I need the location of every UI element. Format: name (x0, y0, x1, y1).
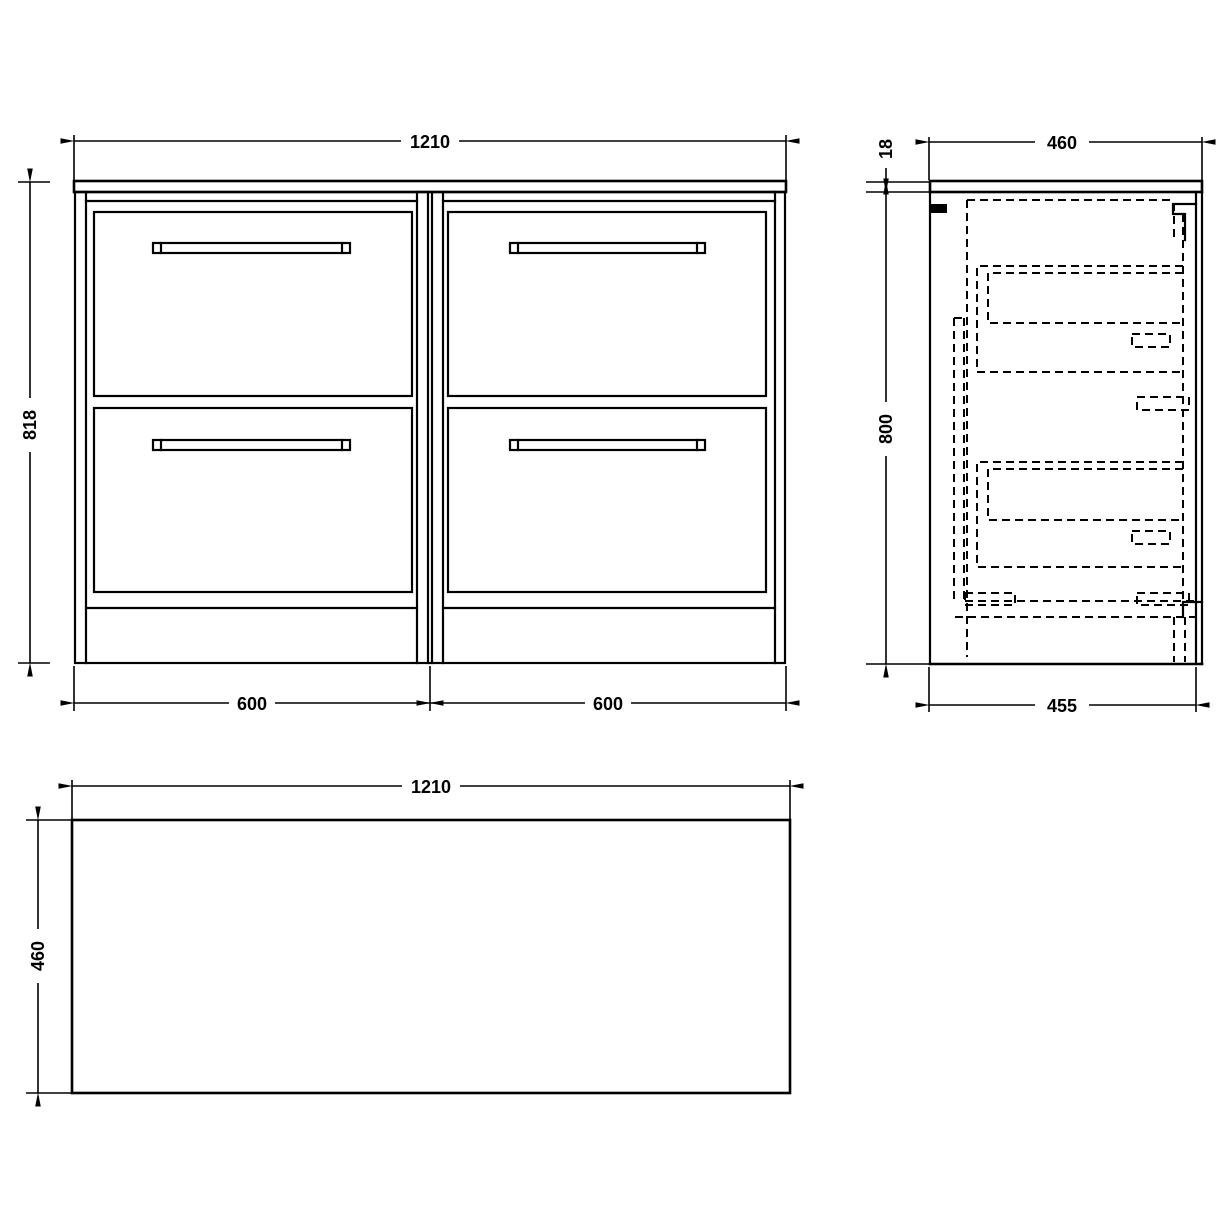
plan-depth-dimension: 460 (26, 820, 72, 1093)
mid-drawer-runner (1137, 397, 1189, 410)
side-unit-height-label: 800 (876, 414, 896, 444)
drawer-front-bottom-right (448, 408, 766, 592)
side-worktop-depth-dimension: 460 (929, 131, 1202, 180)
drawer-front-top-right (448, 212, 766, 396)
side-worktop-thickness-label: 18 (876, 139, 896, 159)
drawer-front-top-left (94, 212, 412, 396)
side-unit-height-dimension: 800 (866, 192, 930, 664)
plan-view: 1210 460 (26, 775, 790, 1093)
back-support (954, 318, 964, 600)
drawer-handle-top-left (153, 243, 350, 253)
front-foot (1137, 593, 1189, 605)
drawer-handle-bottom-left (153, 440, 350, 450)
front-overall-width-label: 1210 (410, 132, 450, 152)
side-carcass-depth-dimension: 455 (929, 667, 1196, 716)
upper-drawer-box (977, 266, 1183, 372)
front-right-unit-width-label: 600 (593, 694, 623, 714)
plan-width-label: 1210 (411, 777, 451, 797)
side-fixing-bracket (930, 204, 947, 213)
lower-drawer-runner (1132, 531, 1170, 544)
front-overall-width-dimension: 1210 (74, 130, 786, 180)
upper-drawer-runner (1132, 334, 1170, 347)
side-hidden-internals (954, 200, 1196, 662)
side-carcass-depth-label: 455 (1047, 696, 1077, 716)
side-worktop-thickness-dimension: 18 (866, 128, 930, 192)
side-view: 460 18 800 (866, 128, 1202, 716)
front-overall-height-dimension: 818 (18, 182, 50, 663)
front-overall-height-label: 818 (20, 410, 40, 440)
front-right-unit-width-dimension: 600 (430, 666, 786, 714)
front-view: 1210 818 (18, 130, 786, 714)
drawing-canvas: 1210 818 (0, 0, 1224, 1224)
lower-drawer-box (977, 462, 1183, 567)
plan-worktop-outline (72, 820, 790, 1093)
plan-width-dimension: 1210 (72, 775, 790, 819)
side-worktop-depth-label: 460 (1047, 133, 1077, 153)
back-foot (965, 593, 1015, 605)
plan-depth-label: 460 (28, 941, 48, 971)
front-left-unit-width-label: 600 (237, 694, 267, 714)
technical-drawing-page: 1210 818 (0, 0, 1224, 1224)
drawer-handle-top-right (510, 243, 705, 253)
drawer-front-bottom-left (94, 408, 412, 592)
drawer-handle-bottom-right (510, 440, 705, 450)
front-left-unit-width-dimension: 600 (74, 666, 430, 714)
side-worktop (930, 181, 1202, 192)
front-worktop (74, 181, 786, 192)
